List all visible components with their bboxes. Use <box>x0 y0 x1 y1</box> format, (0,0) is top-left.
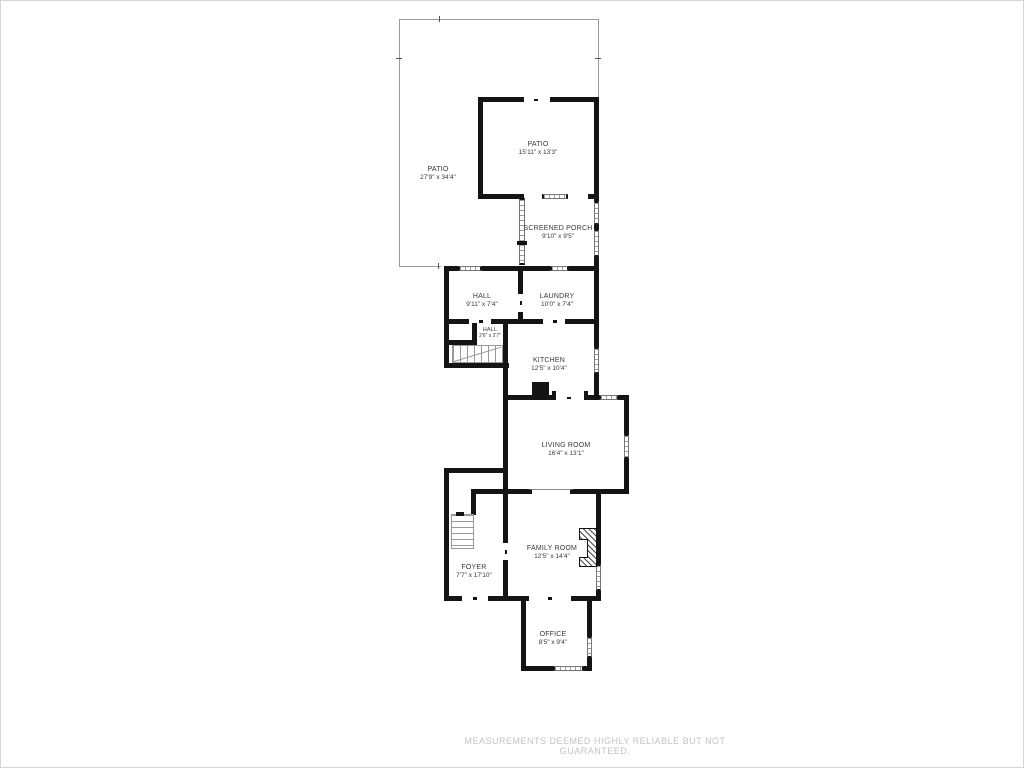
patio-outline-top <box>399 19 599 20</box>
stair-diagonal <box>454 347 501 362</box>
room-label-laundry: LAUNDRY 10'0" x 7'4" <box>507 292 607 309</box>
patio-outline-left <box>399 19 400 267</box>
room-label-family-room: FAMILY ROOM 12'5" x 14'4" <box>502 544 602 561</box>
wall <box>471 494 476 515</box>
room-dims: 10'0" x 7'4" <box>507 301 607 309</box>
room-label-screened-porch: SCREENED PORCH 9'10" x 9'5" <box>508 224 608 241</box>
room-dims: 8'5" x 9'4" <box>503 639 603 647</box>
room-label-kitchen: KITCHEN 12'5" x 10'4" <box>499 356 599 373</box>
window <box>550 266 569 271</box>
screen-wall-mullion <box>517 241 527 245</box>
room-dims: 2'6" x 2'7" <box>465 333 515 339</box>
wall <box>444 323 449 368</box>
wall <box>444 468 508 473</box>
room-name: OFFICE <box>503 630 603 639</box>
measure-tick <box>438 263 439 269</box>
room-dims: 7'7" x 17'10" <box>429 572 519 580</box>
room-name: KITCHEN <box>499 356 599 365</box>
measure-tick <box>595 58 601 59</box>
window <box>599 395 619 400</box>
door-opening-tick <box>553 320 557 323</box>
room-dims: 27'9" x 34'4" <box>388 174 488 182</box>
stair-post <box>456 512 464 516</box>
room-dims: 9'10" x 9'5" <box>508 233 608 241</box>
room-name: FOYER <box>429 563 519 572</box>
window <box>594 201 599 225</box>
wall <box>478 97 483 199</box>
room-label-hall-small: HALL 2'6" x 2'7" <box>465 327 515 339</box>
window <box>596 564 601 591</box>
window <box>458 266 482 271</box>
room-dims: 15'11" x 13'3" <box>488 149 588 157</box>
floor-plan-page: PATIO 27'9" x 34'4" PATIO 15'11" x 13'3"… <box>0 0 1024 768</box>
room-label-patio-large: PATIO 27'9" x 34'4" <box>388 165 488 182</box>
wall <box>550 97 599 102</box>
patio-outline-right <box>598 19 599 99</box>
wall <box>588 194 594 199</box>
door-jamb <box>552 391 556 400</box>
measure-tick <box>396 58 402 59</box>
cased-opening <box>528 489 574 494</box>
wall <box>444 319 599 324</box>
room-name: PATIO <box>488 140 588 149</box>
wall <box>478 194 524 199</box>
window <box>542 194 568 199</box>
room-name: PATIO <box>388 165 488 174</box>
room-label-foyer: FOYER 7'7" x 17'10" <box>429 563 519 580</box>
room-dims: 12'5" x 10'4" <box>499 365 599 373</box>
room-dims: 16'4" x 13'1" <box>506 450 626 458</box>
door-opening-tick <box>534 99 538 101</box>
door-jamb <box>584 391 588 400</box>
room-name: LIVING ROOM <box>506 441 626 450</box>
patio-outline-bottom <box>399 266 441 267</box>
wall <box>478 97 524 102</box>
door-opening-tick <box>548 597 552 600</box>
measure-tick <box>439 16 440 22</box>
staircase <box>452 345 503 363</box>
staircase <box>451 514 474 549</box>
door-opening-tick <box>479 320 483 323</box>
room-label-living-room: LIVING ROOM 16'4" x 13'1" <box>506 441 626 458</box>
wall <box>444 468 449 601</box>
room-name: SCREENED PORCH <box>508 224 608 233</box>
chimney-block <box>532 382 549 395</box>
room-dims: 12'5" x 14'4" <box>502 553 602 561</box>
room-name: FAMILY ROOM <box>502 544 602 553</box>
disclaimer-text: MEASUREMENTS DEEMED HIGHLY RELIABLE BUT … <box>435 736 755 756</box>
door-opening-tick <box>473 597 477 600</box>
room-label-patio: PATIO 15'11" x 13'3" <box>488 140 588 157</box>
room-name: LAUNDRY <box>507 292 607 301</box>
room-label-office: OFFICE 8'5" x 9'4" <box>503 630 603 647</box>
window <box>553 666 584 671</box>
door-opening-tick <box>567 397 571 399</box>
